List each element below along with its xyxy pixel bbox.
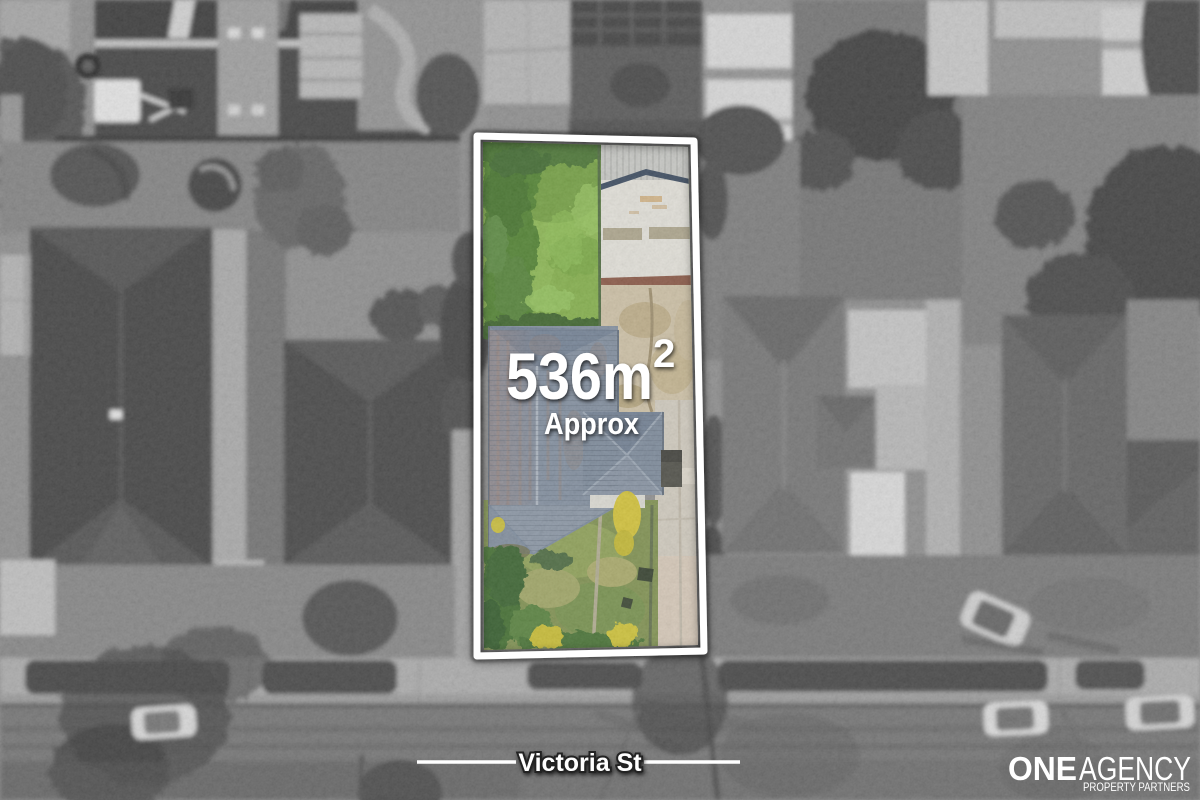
svg-text:Victoria St: Victoria St [518, 749, 642, 777]
svg-text:536m: 536m [506, 339, 653, 413]
svg-text:2: 2 [653, 332, 675, 376]
svg-text:ONE: ONE [1008, 750, 1077, 787]
svg-text:PROPERTY PARTNERS: PROPERTY PARTNERS [1083, 782, 1190, 794]
svg-text:Approx: Approx [544, 406, 640, 441]
